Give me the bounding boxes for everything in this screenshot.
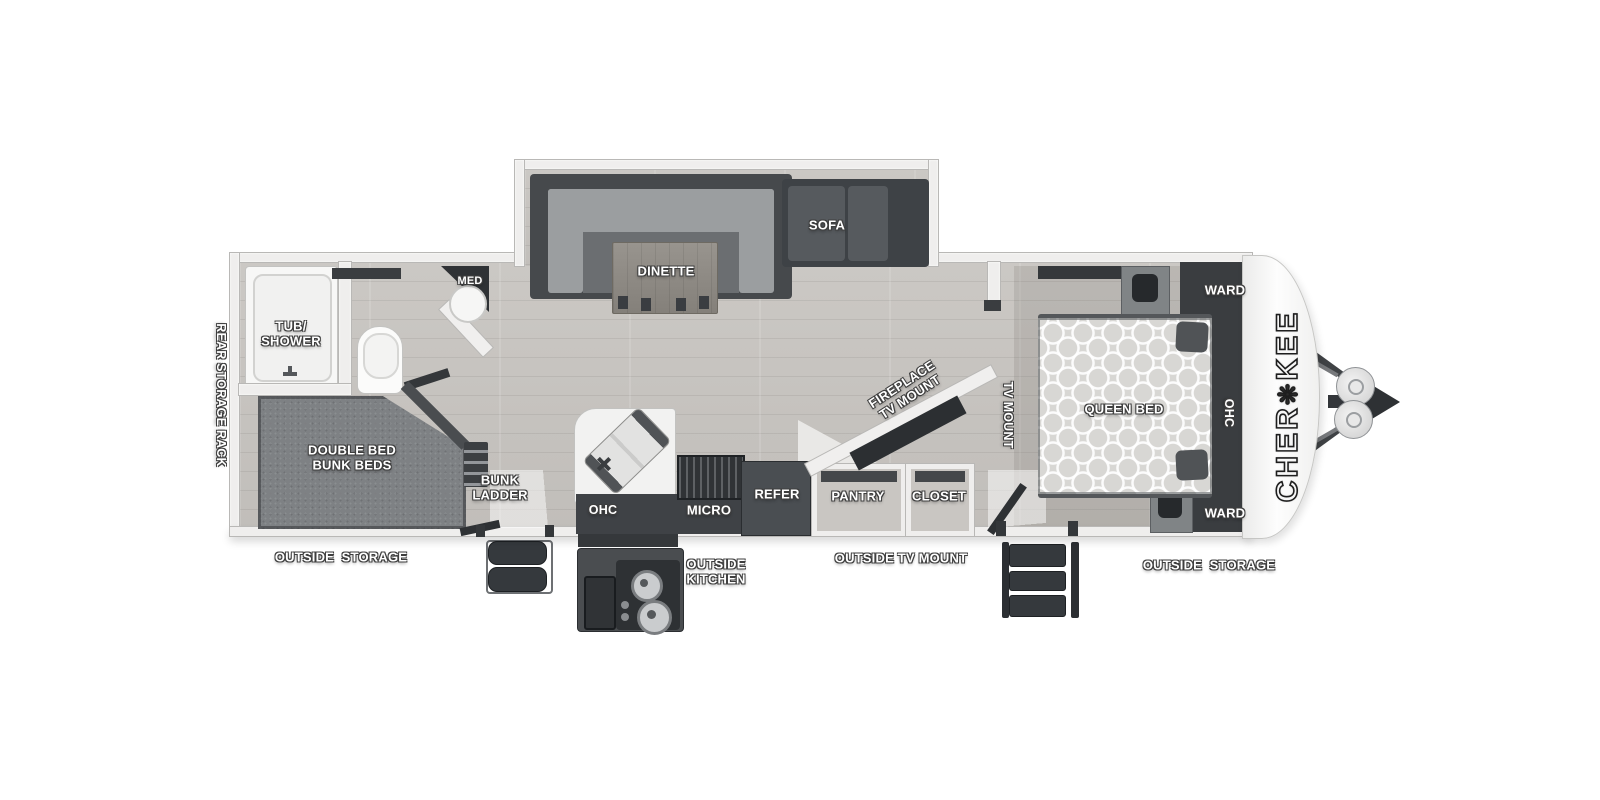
closet-shelf	[915, 471, 965, 482]
stove-knob-b	[621, 613, 629, 621]
refer-label: REFER	[754, 488, 799, 503]
wall-top-right	[929, 253, 1252, 262]
kitchen-ohc-label: OHC	[589, 503, 617, 517]
step-tread	[1009, 544, 1066, 567]
steps-right-rail-right	[1071, 542, 1079, 618]
dinette-table-foot-4	[699, 296, 709, 309]
feather-o-icon: ❋	[1273, 380, 1303, 405]
toilet-seat	[363, 333, 399, 379]
entry-door-frame-left-b	[545, 525, 554, 537]
slideout-wall-top	[515, 160, 938, 169]
step-tread	[488, 567, 547, 592]
nightstand-top-lamp	[1132, 274, 1158, 302]
bunk-beds-label: DOUBLE BED BUNK BEDS	[308, 443, 396, 472]
step-tread	[1009, 595, 1066, 617]
outside-storage-right-label: OUTSIDE STORAGE	[1143, 559, 1275, 574]
microwave	[677, 455, 745, 500]
wall-top-left	[230, 253, 524, 262]
wall-left	[230, 253, 239, 536]
step-tread	[488, 541, 547, 565]
burner-icon-bottom-center	[647, 610, 656, 619]
dinette-table-foot-2	[641, 298, 651, 311]
entry-door-frame-right-a	[996, 521, 1006, 536]
ward-bottom-label: WARD	[1205, 507, 1246, 522]
outside-tv-mount-label: OUTSIDE TV MOUNT	[835, 552, 967, 567]
med-sink	[449, 285, 487, 323]
micro-label: MICRO	[687, 504, 731, 519]
dinette-cushion-right	[739, 189, 774, 293]
propane-tank-bottom-valve	[1346, 412, 1362, 428]
bunk-ladder-label: BUNK LADDER	[472, 473, 527, 502]
pantry-shelf	[821, 471, 897, 482]
closet-label: CLOSET	[912, 490, 966, 505]
bathroom-wall-vertical	[339, 262, 351, 393]
slideout-wall-right	[929, 160, 938, 266]
entry-steps-right	[1002, 540, 1079, 620]
bathroom-wall-bottom	[239, 384, 351, 395]
step-tread	[1009, 571, 1066, 591]
entry-door-frame-right-b	[1068, 521, 1078, 536]
sofa-cushion-right	[848, 186, 888, 261]
shower-door-track	[332, 268, 401, 279]
cherokee-logo: CHER❋KEE	[1271, 310, 1305, 503]
cherokee-logo-part1: CHER	[1271, 405, 1304, 502]
tub-shower-label: TUB/ SHOWER	[261, 319, 321, 348]
entry-door-frame-left-a	[476, 525, 485, 537]
slideout-wall-left	[515, 160, 524, 266]
outside-kitchen-door	[584, 576, 616, 630]
med-label: MED	[457, 275, 482, 287]
queen-bed-pillow-top	[1175, 321, 1209, 353]
dinette-label: DINETTE	[637, 265, 694, 280]
propane-tank-top-valve	[1348, 379, 1364, 395]
pantry-label: PANTRY	[831, 490, 884, 505]
entry-steps-left	[486, 539, 549, 592]
dinette-table-foot-1	[618, 296, 628, 309]
tv-mount-label: TV MOUNT	[1001, 382, 1015, 449]
outside-storage-left-label: OUTSIDE STORAGE	[275, 551, 407, 566]
queen-bed-pillow-bottom	[1175, 449, 1209, 481]
dinette-table-foot-3	[676, 298, 686, 311]
dinette-cushion-left	[548, 189, 583, 293]
queen-bed-label: QUEEN BED	[1084, 403, 1163, 418]
burner-icon-top-center	[640, 579, 648, 587]
steps-right-rail-left	[1002, 542, 1009, 618]
cherokee-logo-part2: KEE	[1271, 310, 1304, 381]
burner-icon-top	[631, 570, 663, 602]
outside-kitchen-label: OUTSIDE KITCHEN	[686, 557, 745, 586]
floorplan-canvas: CHER❋KEE REAR STORAGE RACK TUB/ SHOWER M…	[0, 0, 1600, 800]
bedroom-ohc-label: OHC	[1222, 399, 1236, 427]
sofa-label: SOFA	[809, 219, 845, 234]
tub-faucet-stem-icon	[288, 366, 292, 376]
ward-top-label: WARD	[1205, 284, 1246, 299]
rear-storage-rack-label: REAR STORAGE RACK	[214, 323, 228, 466]
bedroom-stub-cap	[984, 300, 1001, 311]
stove-knob-a	[621, 601, 629, 609]
